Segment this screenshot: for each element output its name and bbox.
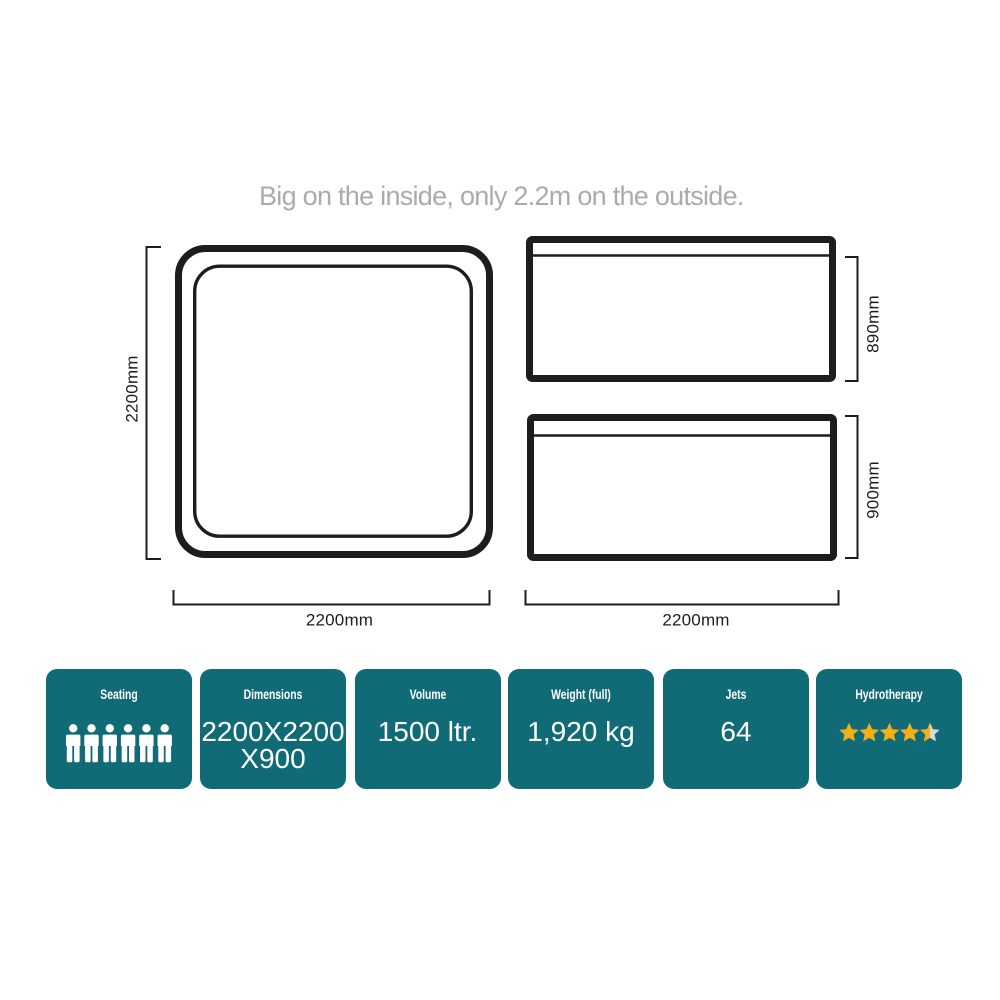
svg-text:890mm: 890mm [864, 295, 883, 353]
svg-text:900mm: 900mm [864, 461, 883, 519]
svg-text:2200mm: 2200mm [662, 611, 729, 630]
svg-text:2200mm: 2200mm [123, 355, 142, 422]
svg-text:2200mm: 2200mm [306, 611, 373, 630]
